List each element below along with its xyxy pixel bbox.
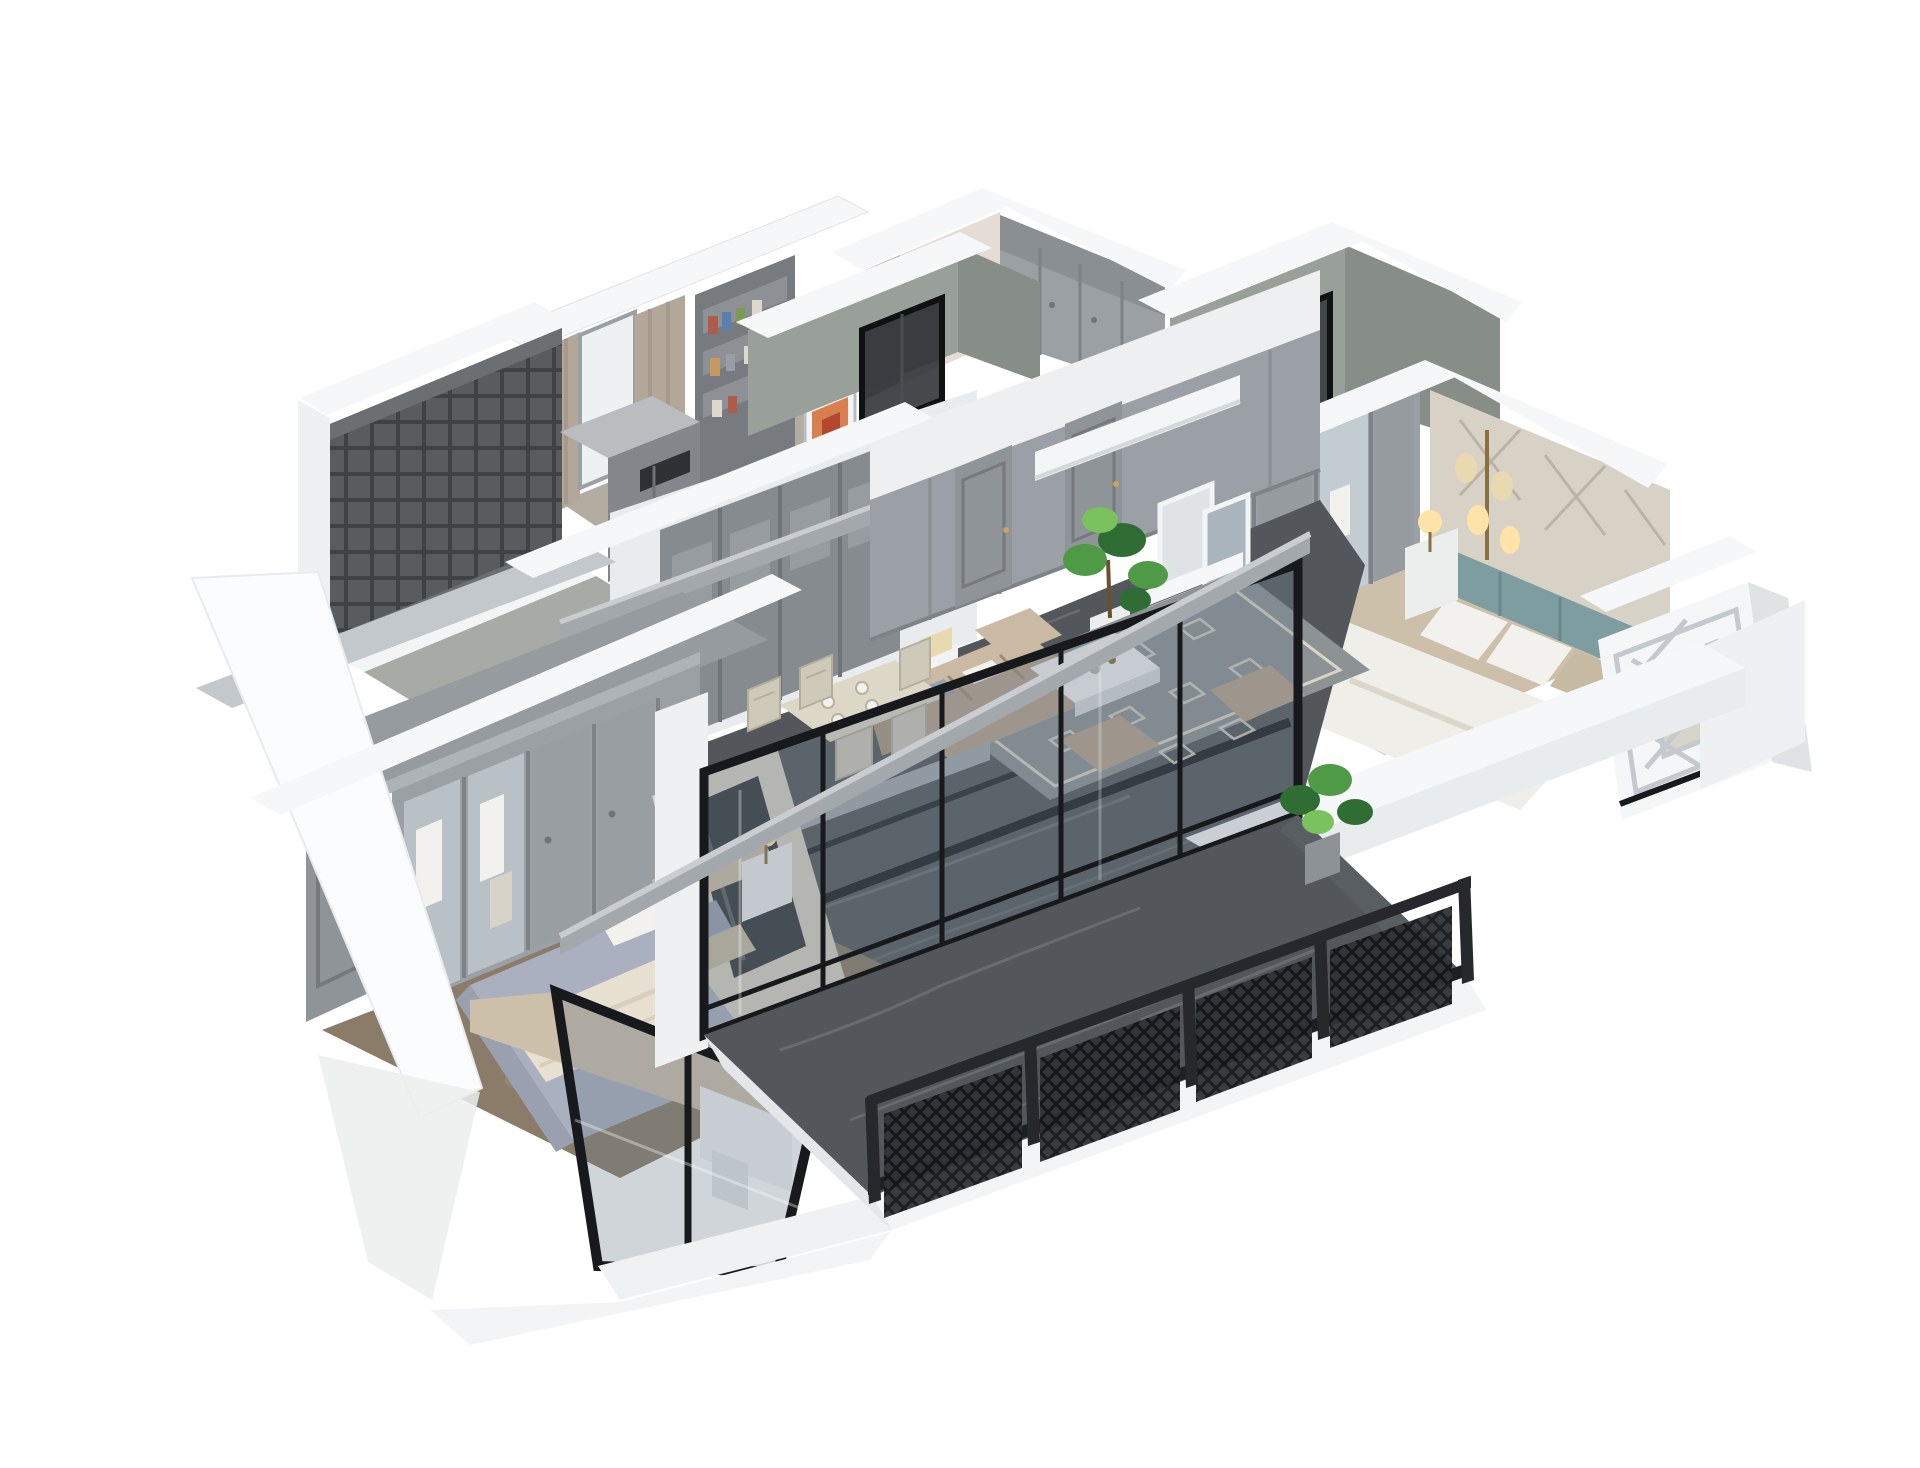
render-canvas — [0, 0, 1920, 1468]
apartment-floorplan-render — [0, 0, 1920, 1468]
hall-door-1 — [955, 445, 1012, 608]
